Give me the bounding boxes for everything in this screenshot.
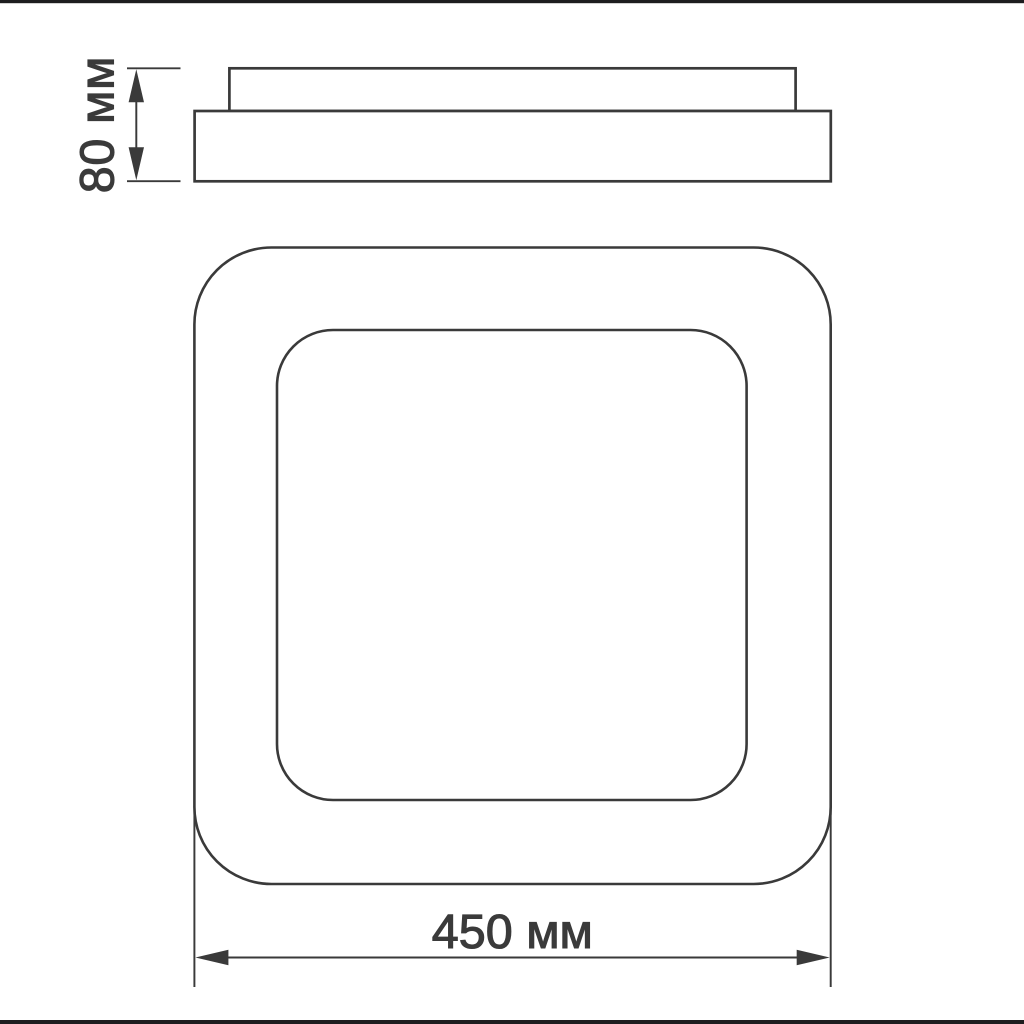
svg-text:80 мм: 80 мм <box>71 56 125 193</box>
svg-text:450 мм: 450 мм <box>432 905 593 959</box>
